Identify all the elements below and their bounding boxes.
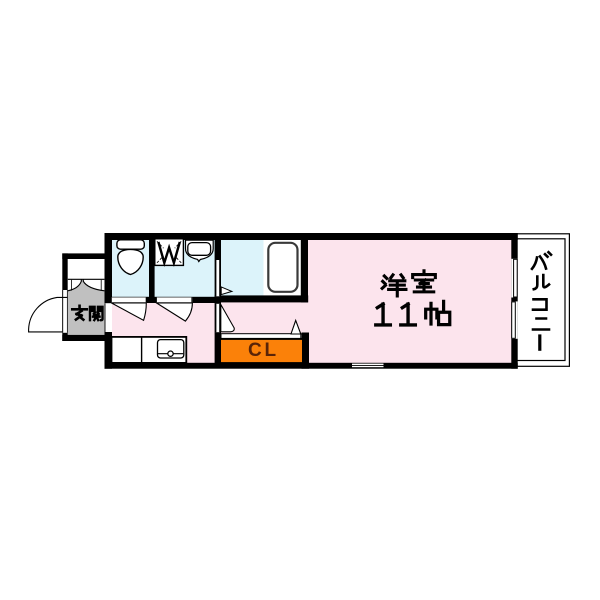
svg-text:L: L (265, 340, 277, 361)
svg-text:C: C (248, 340, 262, 361)
